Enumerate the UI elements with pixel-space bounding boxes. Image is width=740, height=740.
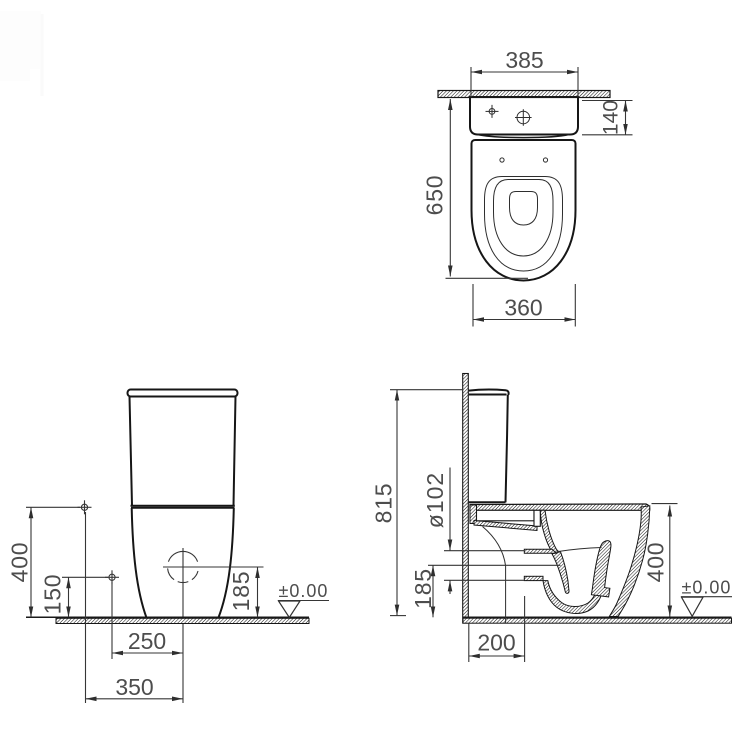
svg-text:±0.00: ±0.00: [279, 581, 329, 601]
svg-text:200: 200: [477, 630, 515, 656]
svg-text:140: 140: [600, 100, 623, 135]
svg-text:400: 400: [643, 542, 669, 583]
svg-text:185: 185: [228, 571, 254, 612]
svg-text:400: 400: [7, 542, 33, 583]
svg-text:360: 360: [504, 295, 542, 321]
svg-text:185: 185: [410, 568, 436, 609]
svg-text:250: 250: [128, 628, 166, 654]
svg-text:815: 815: [371, 483, 397, 524]
svg-text:650: 650: [422, 175, 448, 216]
svg-text:±0.00: ±0.00: [682, 578, 732, 598]
svg-text:150: 150: [40, 574, 66, 615]
svg-text:385: 385: [505, 47, 543, 73]
svg-text:ø102: ø102: [422, 472, 448, 528]
svg-text:350: 350: [115, 674, 153, 700]
